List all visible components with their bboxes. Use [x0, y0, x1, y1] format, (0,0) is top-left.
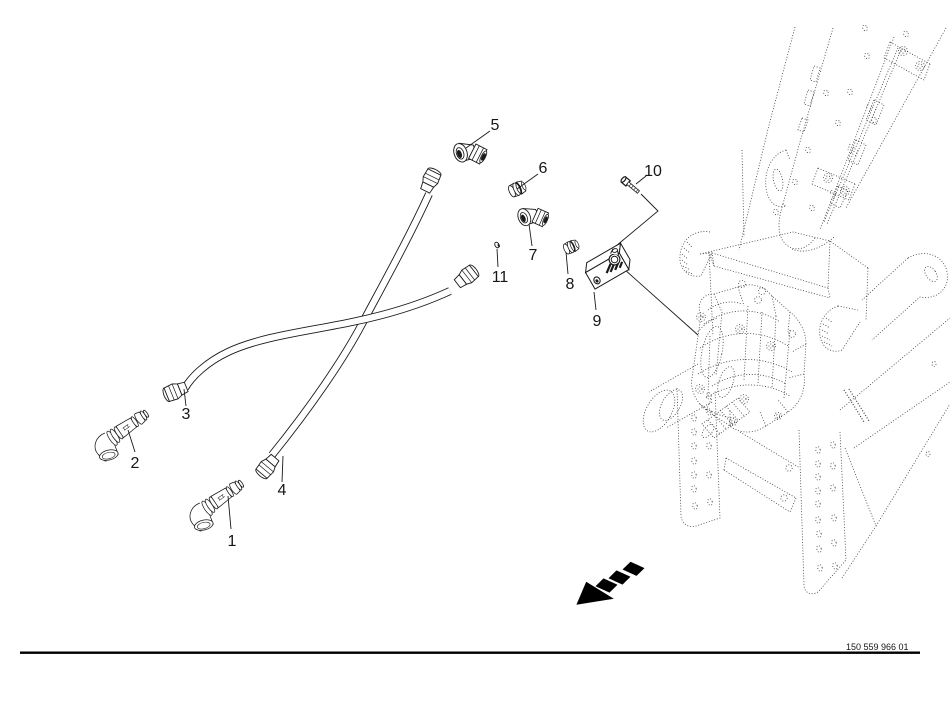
svg-text:1: 1: [228, 533, 237, 550]
svg-text:3: 3: [182, 406, 191, 423]
svg-text:4: 4: [278, 482, 287, 499]
svg-text:10: 10: [644, 163, 662, 180]
svg-text:6: 6: [539, 160, 548, 177]
svg-text:11: 11: [492, 269, 509, 286]
svg-text:5: 5: [491, 117, 500, 134]
svg-text:9: 9: [593, 313, 602, 330]
svg-text:2: 2: [131, 455, 140, 472]
svg-text:150 559 966 01: 150 559 966 01: [846, 642, 909, 652]
svg-text:7: 7: [529, 247, 538, 264]
svg-text:8: 8: [566, 276, 575, 293]
